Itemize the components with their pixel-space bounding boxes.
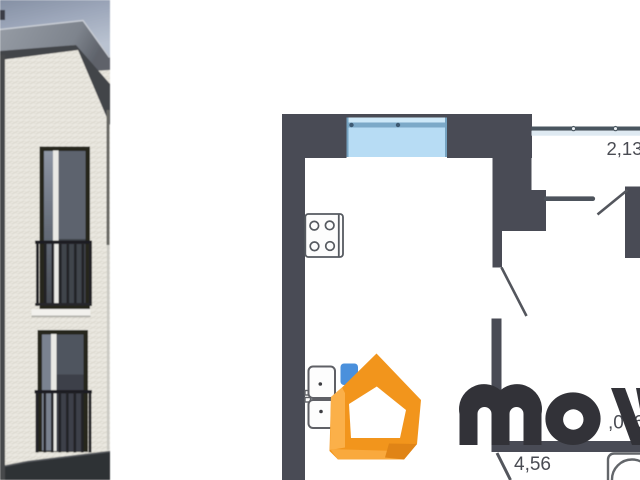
svg-text:2,13: 2,13 <box>607 138 640 159</box>
svg-text:4,56: 4,56 <box>514 454 551 475</box>
